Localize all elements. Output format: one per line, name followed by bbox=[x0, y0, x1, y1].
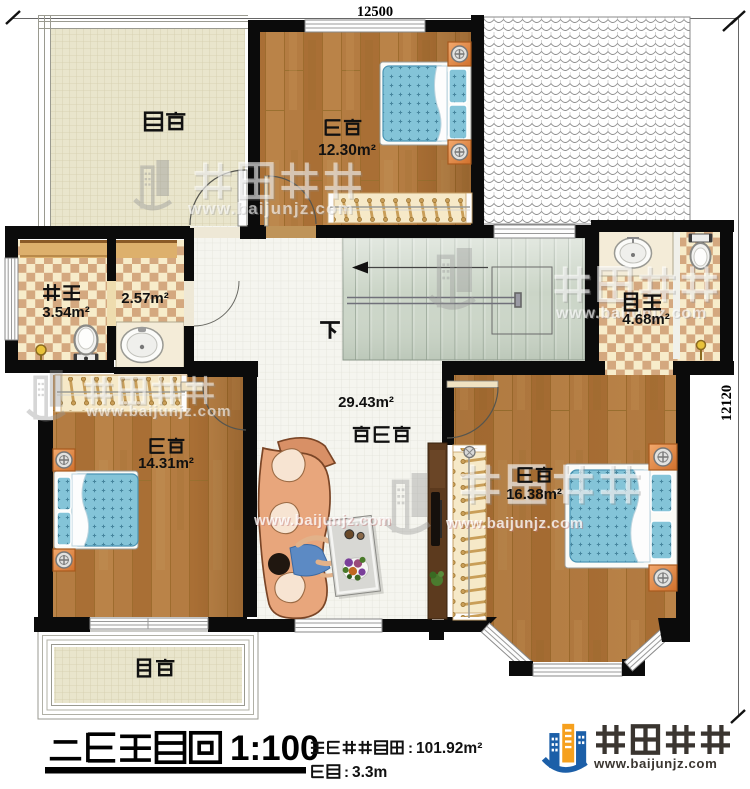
svg-text:1:100: 1:100 bbox=[230, 729, 320, 768]
svg-text:www.baijunjz.com: www.baijunjz.com bbox=[445, 515, 583, 532]
svg-text:3.3m: 3.3m bbox=[352, 764, 387, 781]
svg-text:12120: 12120 bbox=[719, 385, 735, 421]
svg-text:12.30m²: 12.30m² bbox=[318, 142, 376, 159]
svg-text:www.baijunjz.com: www.baijunjz.com bbox=[253, 512, 391, 529]
svg-text:4.68m²: 4.68m² bbox=[622, 311, 670, 328]
svg-text:www.baijunjz.com: www.baijunjz.com bbox=[593, 756, 717, 771]
svg-text:14.31m²: 14.31m² bbox=[138, 455, 194, 472]
svg-text:www.baijunjz.com: www.baijunjz.com bbox=[85, 403, 231, 420]
svg-text:www.baijunjz.com: www.baijunjz.com bbox=[187, 199, 354, 218]
svg-text::: : bbox=[408, 740, 413, 757]
svg-text:29.43m²: 29.43m² bbox=[338, 394, 394, 411]
svg-text:16.38m²: 16.38m² bbox=[506, 486, 562, 503]
svg-text:101.92m²: 101.92m² bbox=[416, 740, 482, 757]
svg-text:3.54m²: 3.54m² bbox=[42, 304, 90, 321]
svg-text::: : bbox=[344, 764, 349, 781]
svg-text:2.57m²: 2.57m² bbox=[121, 290, 169, 307]
svg-text:12500: 12500 bbox=[357, 4, 393, 20]
